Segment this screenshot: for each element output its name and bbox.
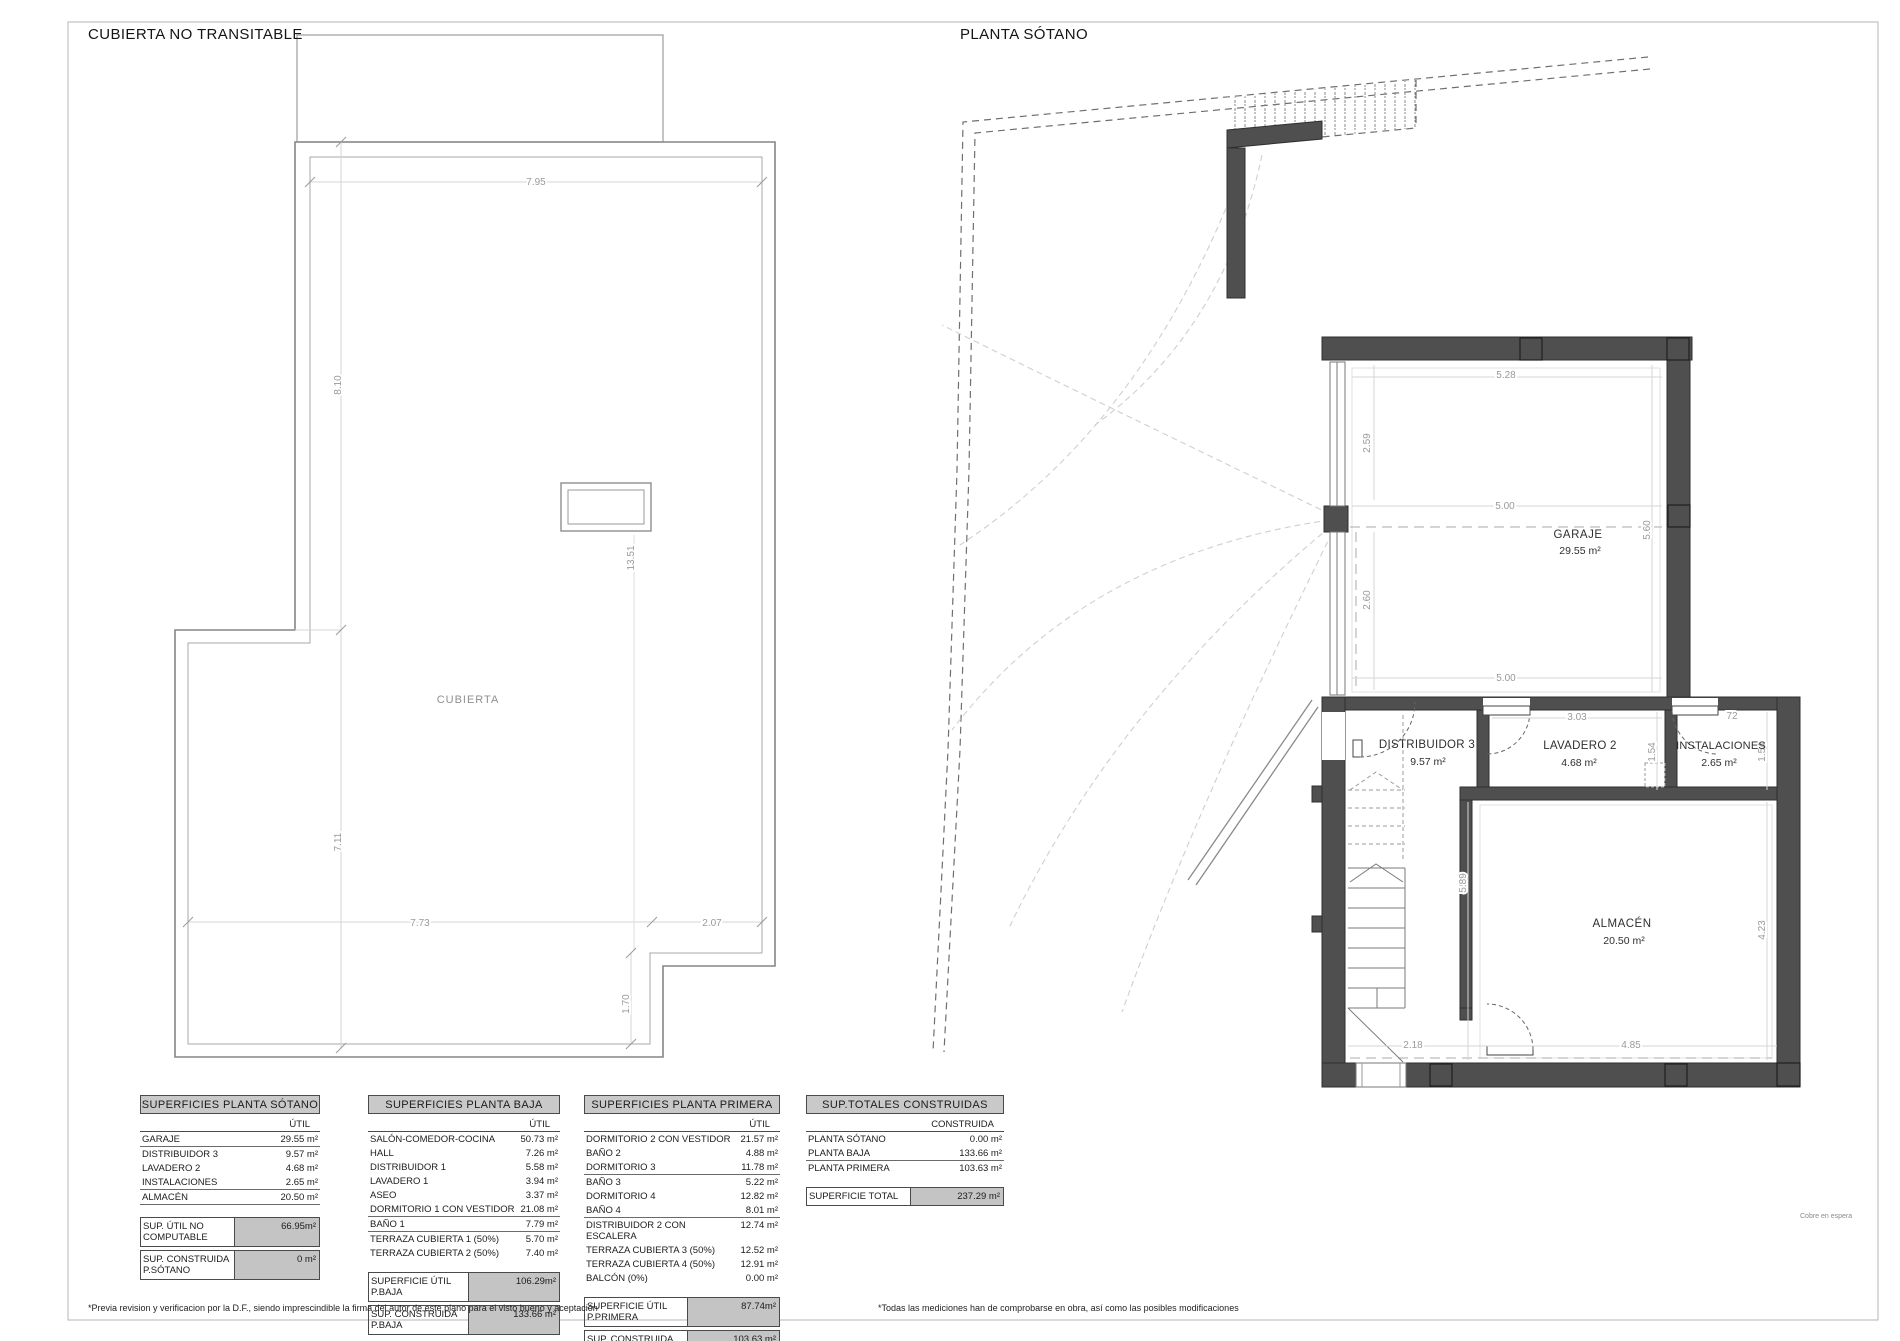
row-label: SALÓN-COMEDOR-COCINA <box>370 1134 499 1145</box>
room-labels: GARAJE 29.55 m² DISTRIBUIDOR 3 9.57 m² L… <box>1379 529 1766 947</box>
row-label: BAÑO 1 <box>370 1219 409 1230</box>
table-row: BAÑO 17.79 m² <box>368 1217 560 1232</box>
south-wall-opening <box>1356 1063 1406 1087</box>
dim-label: 1.54 <box>1647 742 1658 762</box>
table-row: LAVADERO 24.68 m² <box>140 1161 320 1175</box>
roof-dim-labels: 7.95 8.10 7.11 13.51 7.73 2.07 1.70 <box>333 177 722 1014</box>
room-name-almacen: ALMACÉN <box>1592 917 1651 930</box>
table-totals: SUPERFICIE ÚTIL P.PRIMERA87.74m² SUP. CO… <box>584 1297 780 1341</box>
driveway-arcs <box>942 155 1332 1012</box>
ramp-wall <box>1188 700 1318 885</box>
row-label: PLANTA PRIMERA <box>808 1163 894 1174</box>
garage-door-pier <box>1324 506 1348 532</box>
pillar <box>1665 1064 1687 1086</box>
row-label: PLANTA SÓTANO <box>808 1134 890 1145</box>
room-area-garaje: 29.55 m² <box>1559 545 1601 557</box>
dim-label: 5.60 <box>1642 520 1653 540</box>
table-superficies-sotano: SUPERFICIES PLANTA SÓTANO ÚTIL GARAJE29.… <box>140 1095 320 1280</box>
row-label: DISTRIBUIDOR 2 CON ESCALERA <box>586 1220 741 1242</box>
room-area-almacen: 20.50 m² <box>1603 935 1645 947</box>
left-plan-title: CUBIERTA NO TRANSITABLE <box>88 26 303 43</box>
total-label: SUPERFICIE TOTAL <box>807 1188 910 1205</box>
row-label: DORMITORIO 1 CON VESTIDOR <box>370 1204 518 1215</box>
total-value: 106.29m² <box>468 1273 559 1301</box>
dim-label: 4.85 <box>1621 1040 1641 1051</box>
table-row: BAÑO 24.88 m² <box>584 1146 780 1160</box>
pillar <box>1668 505 1690 527</box>
table-row: PLANTA PRIMERA103.63 m² <box>806 1161 1004 1175</box>
table-row: TERRAZA CUBIERTA 1 (50%)5.70 m² <box>368 1232 560 1246</box>
dim-label: 2.07 <box>702 918 722 929</box>
stairs-diagonal <box>1348 1008 1403 1062</box>
row-value: 11.78 m² <box>741 1162 778 1173</box>
total-label: SUPERFICIE ÚTIL P.PRIMERA <box>585 1298 687 1326</box>
almacen-door <box>1487 1004 1533 1055</box>
room-area-lavadero: 4.68 m² <box>1561 757 1597 769</box>
table-row: DISTRIBUIDOR 2 CON ESCALERA12.74 m² <box>584 1218 780 1243</box>
row-label: TERRAZA CUBIERTA 1 (50%) <box>370 1234 503 1245</box>
table-row: LAVADERO 13.94 m² <box>368 1174 560 1188</box>
roof-tower-outline <box>297 35 663 142</box>
row-value: 5.58 m² <box>526 1162 558 1173</box>
table-row: DISTRIBUIDOR 15.58 m² <box>368 1160 560 1174</box>
table-column-header: ÚTIL <box>368 1114 560 1132</box>
pillar <box>1777 1063 1800 1086</box>
row-value: 7.26 m² <box>526 1148 558 1159</box>
table-row: DORMITORIO 412.82 m² <box>584 1189 780 1203</box>
table-title: SUP.TOTALES CONSTRUIDAS <box>806 1095 1004 1114</box>
row-value: 103.63 m² <box>959 1163 1002 1174</box>
site-boundary <box>933 57 1650 1052</box>
table-row: BAÑO 48.01 m² <box>584 1203 780 1218</box>
row-label: DORMITORIO 4 <box>586 1191 660 1202</box>
row-label: PLANTA BAJA <box>808 1148 874 1159</box>
dim-label: 13.51 <box>626 545 637 570</box>
dim-label: 1.70 <box>621 994 632 1014</box>
row-label: HALL <box>370 1148 398 1159</box>
row-label: GARAJE <box>142 1134 184 1145</box>
roof-inner-outline <box>188 157 762 1044</box>
roof-dim-ticks <box>183 137 767 1053</box>
table-row: DORMITORIO 311.78 m² <box>584 1160 780 1175</box>
dim-label: 5.89 <box>1458 873 1469 893</box>
table-row: BAÑO 35.22 m² <box>584 1175 780 1189</box>
table-row: SALÓN-COMEDOR-COCINA50.73 m² <box>368 1132 560 1146</box>
stairs <box>1348 715 1405 1062</box>
dim-label: 2.60 <box>1362 590 1373 610</box>
row-value: 4.88 m² <box>746 1148 778 1159</box>
row-value: 50.73 m² <box>521 1134 559 1145</box>
table-totals: SUPERFICIE TOTAL237.29 m² <box>806 1187 1004 1206</box>
dim-label: 7.95 <box>526 177 546 188</box>
table-row: DISTRIBUIDOR 39.57 m² <box>140 1147 320 1161</box>
dim-label: 5.00 <box>1495 501 1515 512</box>
row-value: 8.01 m² <box>746 1205 778 1216</box>
row-label: TERRAZA CUBIERTA 4 (50%) <box>586 1259 719 1270</box>
room-area-instalaciones: 2.65 m² <box>1701 757 1737 769</box>
wall-distribuidor-almacen <box>1460 800 1472 1008</box>
wall-entrance-side <box>1227 148 1245 298</box>
dim-label: 2.59 <box>1362 433 1373 453</box>
total-row: SUP. CONSTRUIDA P.SÓTANO0 m² <box>140 1250 320 1280</box>
pillar <box>1430 1064 1452 1086</box>
total-row: SUPERFICIE ÚTIL P.PRIMERA87.74m² <box>584 1297 780 1327</box>
roof-dimension-lines <box>188 142 762 1048</box>
total-row: SUPERFICIE ÚTIL P.BAJA106.29m² <box>368 1272 560 1302</box>
table-totals: SUP. ÚTIL NO COMPUTABLE66.95m² SUP. CONS… <box>140 1217 320 1280</box>
table-row: HALL7.26 m² <box>368 1146 560 1160</box>
footnote-right: *Todas las mediciones han de comprobarse… <box>878 1303 1239 1313</box>
pillar <box>1667 338 1689 360</box>
total-label: SUPERFICIE ÚTIL P.BAJA <box>369 1273 468 1301</box>
roof-skylight-inner <box>568 490 644 524</box>
table-totales-construidas: SUP.TOTALES CONSTRUIDAS CONSTRUIDA PLANT… <box>806 1095 1004 1206</box>
total-row: SUP. ÚTIL NO COMPUTABLE66.95m² <box>140 1217 320 1247</box>
table-row: TERRAZA CUBIERTA 4 (50%)12.91 m² <box>584 1257 780 1271</box>
row-value: 12.52 m² <box>741 1245 779 1256</box>
total-label: SUP. CONSTRUIDA P.PRIMERA <box>585 1331 687 1341</box>
wall-west-bump-2 <box>1312 916 1322 932</box>
row-label: BAÑO 4 <box>586 1205 625 1216</box>
footnote-left: *Previa revision y verificacion por la D… <box>88 1303 598 1313</box>
row-value: 5.22 m² <box>746 1177 778 1188</box>
table-row: TERRAZA CUBIERTA 2 (50%)7.40 m² <box>368 1246 560 1260</box>
stairs-arrow <box>1350 864 1403 882</box>
room-name-instalaciones: INSTALACIONES <box>1676 740 1766 752</box>
table-title: SUPERFICIES PLANTA SÓTANO <box>140 1095 320 1114</box>
row-value: 9.57 m² <box>286 1149 318 1160</box>
site-boundary-inner <box>944 69 1650 1052</box>
row-value: 5.70 m² <box>526 1234 558 1245</box>
table-column-header: CONSTRUIDA <box>806 1114 1004 1132</box>
total-label: SUP. ÚTIL NO COMPUTABLE <box>141 1218 234 1246</box>
stairs-dashed-upper <box>1348 715 1405 862</box>
total-value: 103.63 m² <box>687 1331 779 1341</box>
room-name-lavadero: LAVADERO 2 <box>1543 740 1617 752</box>
table-column-header: ÚTIL <box>584 1114 780 1132</box>
table-row: INSTALACIONES2.65 m² <box>140 1175 320 1190</box>
row-label: BAÑO 3 <box>586 1177 625 1188</box>
walls <box>1227 121 1800 1087</box>
row-value: 12.91 m² <box>741 1259 779 1270</box>
table-row: DORMITORIO 2 CON VESTIDOR21.57 m² <box>584 1132 780 1146</box>
table-row: BALCÓN (0%)0.00 m² <box>584 1271 780 1285</box>
row-value: 29.55 m² <box>281 1134 319 1145</box>
wall-door-stub <box>1460 1008 1472 1020</box>
wall-east <box>1777 697 1800 1087</box>
wall-rooms-almacen <box>1460 787 1777 800</box>
row-label: LAVADERO 2 <box>142 1163 204 1174</box>
row-label: LAVADERO 1 <box>370 1176 432 1187</box>
room-name-garaje: GARAJE <box>1553 529 1602 541</box>
row-value: 12.74 m² <box>741 1220 779 1231</box>
room-area-distribuidor: 9.57 m² <box>1410 756 1446 768</box>
table-column-header: ÚTIL <box>140 1114 320 1132</box>
table-row: TERRAZA CUBIERTA 3 (50%)12.52 m² <box>584 1243 780 1257</box>
total-value: 66.95m² <box>234 1218 319 1246</box>
row-label: TERRAZA CUBIERTA 3 (50%) <box>586 1245 719 1256</box>
row-value: 20.50 m² <box>281 1192 319 1203</box>
dim-label: 7.11 <box>333 832 344 851</box>
dim-label: 8.10 <box>333 375 344 395</box>
total-row: SUPERFICIE TOTAL237.29 m² <box>806 1187 1004 1206</box>
row-label: TERRAZA CUBIERTA 2 (50%) <box>370 1248 503 1259</box>
dim-label: 72 <box>1726 711 1738 722</box>
roof-outer-outline <box>175 142 775 1057</box>
side-note: Cobre en espera <box>1800 1213 1852 1220</box>
table-superficies-baja: SUPERFICIES PLANTA BAJA ÚTIL SALÓN-COMED… <box>368 1095 560 1335</box>
drawing-sheet: 7.95 8.10 7.11 13.51 7.73 2.07 1.70 CUBI… <box>0 0 1900 1341</box>
row-value: 0.00 m² <box>746 1273 778 1284</box>
dim-label: 7.73 <box>410 918 430 929</box>
wall-garage-east <box>1667 360 1690 700</box>
total-value: 87.74m² <box>687 1298 779 1326</box>
wall-distribuidor-lavadero <box>1477 710 1489 792</box>
table-row: GARAJE29.55 m² <box>140 1132 320 1147</box>
pillar <box>1520 338 1542 360</box>
row-label: ASEO <box>370 1190 400 1201</box>
table-title: SUPERFICIES PLANTA BAJA <box>368 1095 560 1114</box>
room-name-distribuidor: DISTRIBUIDOR 3 <box>1379 739 1475 751</box>
row-label: ALMACÉN <box>142 1192 192 1203</box>
row-label: DORMITORIO 3 <box>586 1162 660 1173</box>
row-label: BAÑO 2 <box>586 1148 625 1159</box>
table-superficies-primera: SUPERFICIES PLANTA PRIMERA ÚTIL DORMITOR… <box>584 1095 780 1341</box>
dim-label: 5.28 <box>1496 370 1516 381</box>
row-label: INSTALACIONES <box>142 1177 221 1188</box>
row-value: 21.57 m² <box>741 1134 779 1145</box>
basement-plan: 5.28 2.59 5.00 2.60 5.00 5.60 3.03 1.54 … <box>933 57 1800 1087</box>
total-value: 0 m² <box>234 1251 319 1279</box>
dim-label: 2.18 <box>1403 1040 1423 1051</box>
roof-room-label: CUBIERTA <box>437 694 500 706</box>
row-value: 7.40 m² <box>526 1248 558 1259</box>
lavadero-door <box>1483 698 1530 754</box>
row-label: DISTRIBUIDOR 3 <box>142 1149 222 1160</box>
right-plan-title: PLANTA SÓTANO <box>960 26 1088 43</box>
dim-label: 4.23 <box>1757 920 1768 940</box>
row-label: BALCÓN (0%) <box>586 1273 652 1284</box>
row-value: 4.68 m² <box>286 1163 318 1174</box>
site-boundary-outer <box>933 57 1648 1052</box>
table-row: PLANTA BAJA133.66 m² <box>806 1146 1004 1161</box>
wall-west-bump-1 <box>1312 786 1322 802</box>
table-row: ASEO3.37 m² <box>368 1188 560 1202</box>
table-row: PLANTA SÓTANO0.00 m² <box>806 1132 1004 1146</box>
wall-garage-north <box>1322 337 1692 360</box>
row-value: 21.08 m² <box>521 1204 559 1215</box>
dim-label: 5.00 <box>1496 673 1516 684</box>
row-value: 7.79 m² <box>526 1219 558 1230</box>
table-row: ALMACÉN20.50 m² <box>140 1190 320 1205</box>
dim-label: 3.03 <box>1567 712 1587 723</box>
row-value: 0.00 m² <box>970 1134 1002 1145</box>
table-title: SUPERFICIES PLANTA PRIMERA <box>584 1095 780 1114</box>
row-value: 3.94 m² <box>526 1176 558 1187</box>
table-row: DORMITORIO 1 CON VESTIDOR21.08 m² <box>368 1202 560 1217</box>
row-value: 133.66 m² <box>959 1148 1002 1159</box>
total-value: 237.29 m² <box>910 1188 1003 1205</box>
total-row: SUP. CONSTRUIDA P.PRIMERA103.63 m² <box>584 1330 780 1341</box>
shaft-box <box>1645 763 1665 787</box>
wall-rooms-north <box>1322 697 1800 710</box>
roof-plan: 7.95 8.10 7.11 13.51 7.73 2.07 1.70 CUBI… <box>175 35 775 1057</box>
total-label: SUP. CONSTRUIDA P.SÓTANO <box>141 1251 234 1279</box>
row-label: DORMITORIO 2 CON VESTIDOR <box>586 1134 734 1145</box>
row-value: 3.37 m² <box>526 1190 558 1201</box>
row-value: 12.82 m² <box>741 1191 779 1202</box>
row-value: 2.65 m² <box>286 1177 318 1188</box>
row-label: DISTRIBUIDOR 1 <box>370 1162 450 1173</box>
